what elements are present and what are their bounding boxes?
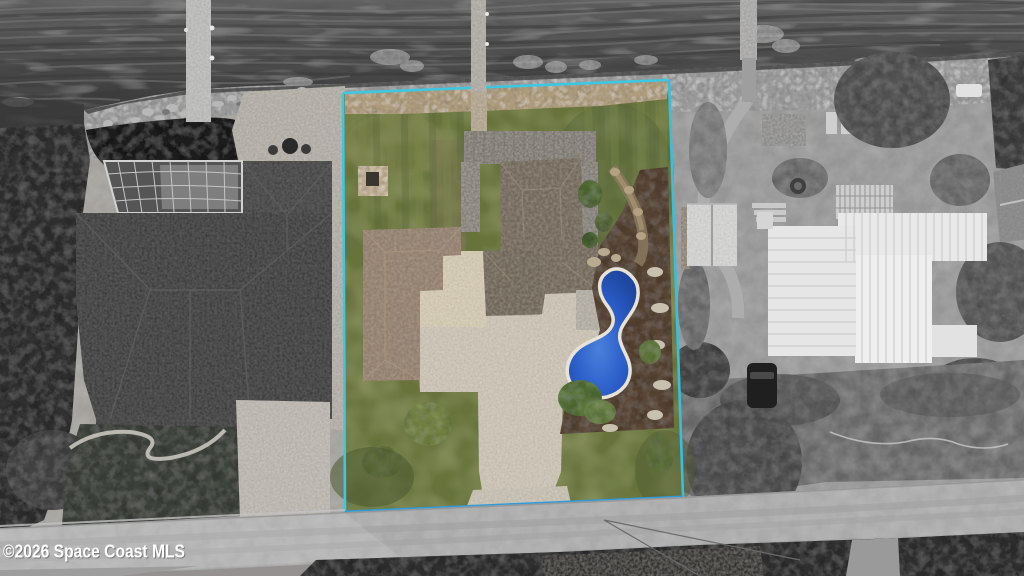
svg-text:©2026 Space Coast MLS: ©2026 Space Coast MLS [3,542,185,562]
